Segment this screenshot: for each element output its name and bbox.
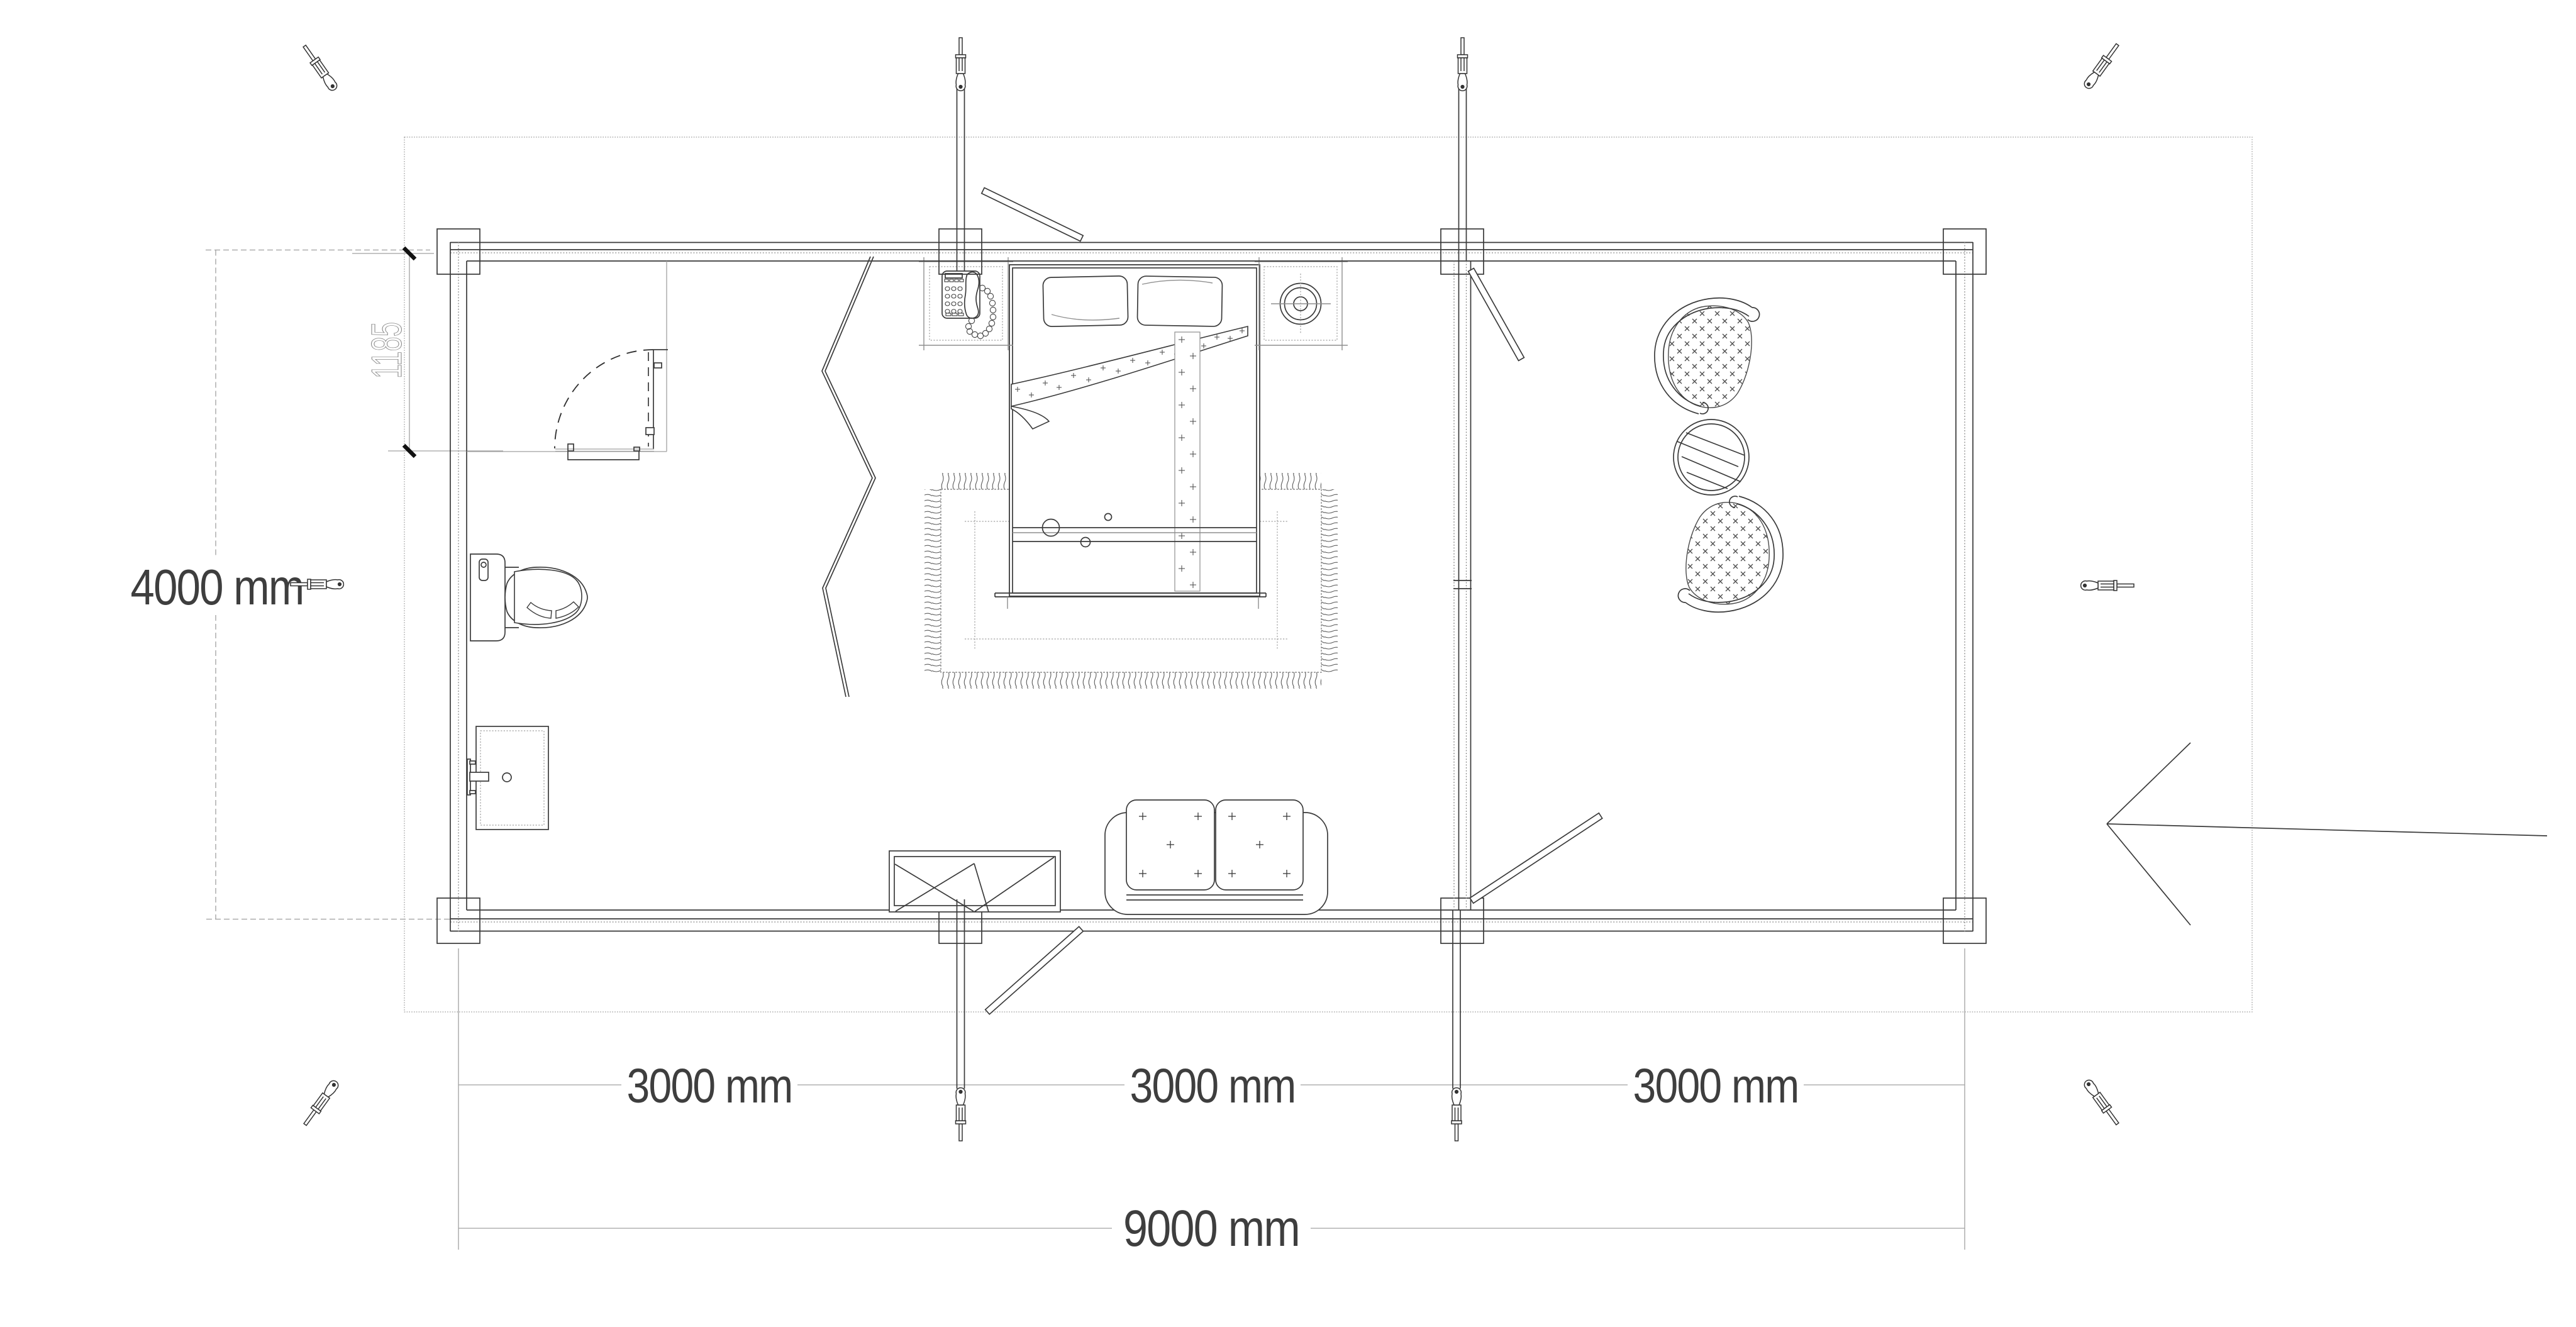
svg-text:3000 mm: 3000 mm [1130,1059,1296,1113]
svg-text:4000 mm: 4000 mm [131,559,304,615]
svg-text:3000 mm: 3000 mm [627,1059,792,1113]
svg-text:3000 mm: 3000 mm [1633,1059,1799,1113]
svg-text:1185: 1185 [363,322,411,379]
svg-text:9000 mm: 9000 mm [1123,1200,1299,1257]
